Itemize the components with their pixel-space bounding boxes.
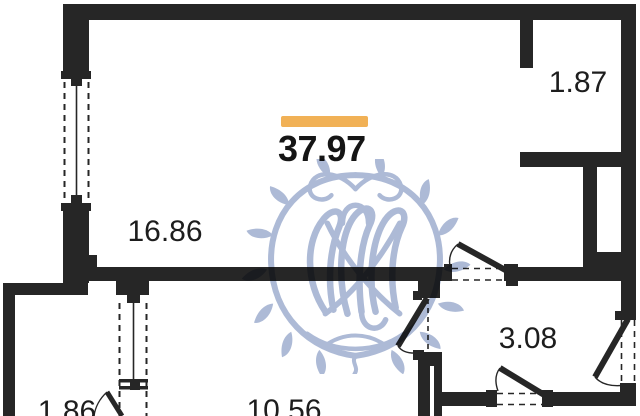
floor-plan: 37.97 16.86 1.87 3.08 10.56 1.86 (0, 0, 640, 416)
door-leaf (398, 298, 427, 346)
room-label-kitchen: 10.56 (229, 396, 339, 416)
window-left (61, 71, 91, 211)
wall-niche-stub (520, 4, 533, 68)
balcony-door-stub-bottom (620, 383, 636, 393)
door-leaf (595, 319, 628, 377)
door1-end-cap (444, 264, 452, 281)
total-area-value: 37.97 (278, 131, 366, 167)
wall-bottom-seg2 (551, 392, 636, 406)
room-label-balcony: 1.86 (12, 397, 122, 416)
wall-niche-bottom (520, 152, 636, 167)
door1-hinge-cap (506, 278, 518, 286)
wall-top (63, 4, 636, 20)
door-bathroom (496, 368, 546, 405)
wall-vent-shaft-bottom (597, 252, 623, 281)
wall-main-horizontal-left (63, 267, 446, 281)
wall-bottom-seg1 (440, 392, 490, 406)
door-kitchen (398, 298, 428, 353)
wall-slot (430, 366, 434, 416)
wall-pier (88, 255, 97, 268)
door-leaf (500, 368, 546, 396)
door-swing-arc (496, 368, 500, 391)
total-area-bar (281, 116, 368, 127)
room-label-living: 16.86 (110, 217, 220, 247)
room-label-hallway: 3.08 (473, 324, 583, 354)
wall-cap-a (413, 291, 422, 300)
wall-vent-shaft (583, 165, 597, 281)
room-label-niche: 1.87 (523, 68, 633, 98)
wall-left-upper (63, 4, 89, 74)
door-post-left (486, 390, 497, 407)
wall-balcony-top (3, 283, 88, 295)
door-balcony-right (595, 319, 635, 386)
balcony-glazing (116, 281, 149, 416)
door-living-hallway (450, 244, 509, 280)
